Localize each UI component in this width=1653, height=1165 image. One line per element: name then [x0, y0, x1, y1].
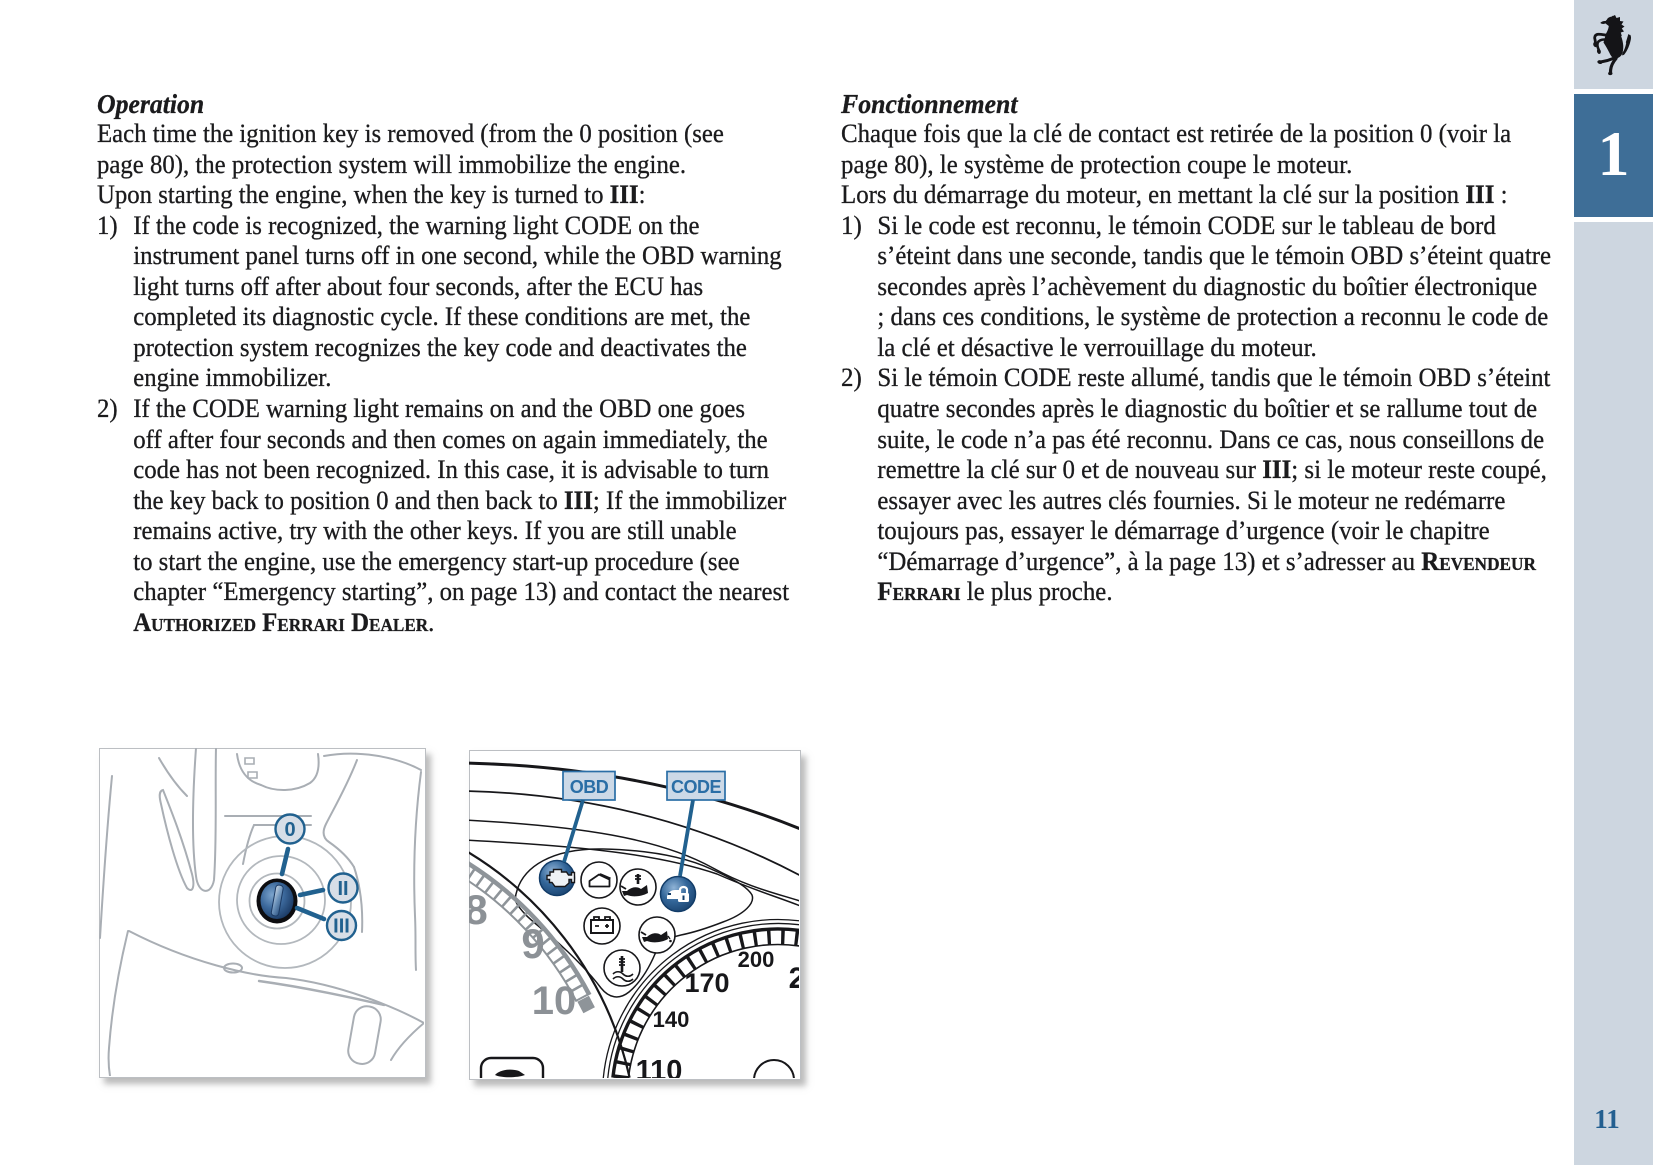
svg-text:10: 10	[532, 979, 577, 1023]
svg-text:CODE: CODE	[671, 777, 721, 797]
svg-text:III: III	[333, 916, 350, 938]
svg-text:8: 8	[469, 886, 488, 933]
svg-text:170: 170	[684, 968, 729, 998]
svg-text:110: 110	[636, 1055, 683, 1078]
svg-text:2: 2	[789, 962, 799, 995]
svg-text:0: 0	[284, 819, 295, 841]
svg-text:200: 200	[738, 947, 775, 972]
svg-text:140: 140	[653, 1007, 690, 1032]
svg-text:9: 9	[521, 920, 544, 967]
svg-text:II: II	[337, 878, 348, 900]
svg-text:OBD: OBD	[570, 777, 609, 797]
